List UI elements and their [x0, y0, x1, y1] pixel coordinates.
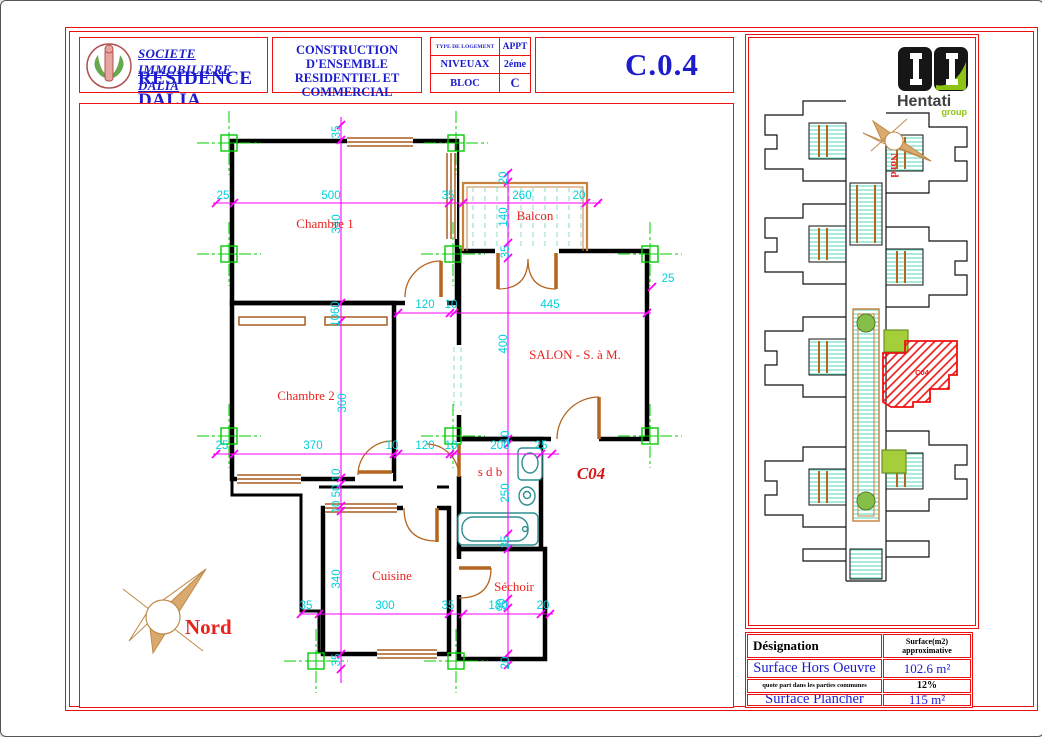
dimension-label: 25 — [216, 440, 229, 452]
dimension-label: 35 — [331, 654, 343, 667]
dimension-label: 340 — [331, 569, 343, 588]
field-level-value: 2éme — [500, 56, 530, 74]
site-north-label: Nord — [888, 153, 900, 177]
site-plan-drawing: C04 Hentati group Nord — [749, 38, 975, 625]
room-label: Séchoir — [494, 579, 534, 594]
dimension-label: 35 — [442, 600, 455, 612]
dimension-label: 35 — [500, 246, 512, 259]
dimension-label: 10 — [445, 440, 458, 452]
row-quote-part-value: 12% — [883, 679, 971, 693]
compass-circle — [146, 600, 180, 634]
room-label: Balcon — [517, 208, 554, 223]
logo-subtitle: group — [942, 107, 968, 117]
row-hors-oeuvre-label: Surface Hors Oeuvre — [747, 659, 882, 678]
surface-header-line2: approximative — [902, 646, 952, 655]
bathtub-inner — [462, 517, 528, 541]
toilet-drain — [524, 492, 531, 499]
titleblock-number-box: C.0.4 — [535, 37, 734, 93]
titleblock-fields-box: TYPE DE LOGEMENT APPT NIVEUAX 2éme BLOC … — [430, 37, 531, 93]
dimension-label: 300 — [375, 600, 394, 612]
dimension-label: 20 — [537, 600, 550, 612]
dimension-label: 90 — [496, 599, 508, 612]
dimension-label: 10 — [386, 440, 399, 452]
room-label: Chambre 1 — [296, 216, 353, 231]
table-header-surface: Surface(m2) approximative — [883, 634, 971, 658]
dimension-label: 120 — [415, 440, 434, 452]
wall-salon — [459, 251, 647, 439]
dimension-label: 35 — [331, 126, 343, 139]
sink-basin — [522, 453, 538, 473]
north-label: Nord — [185, 615, 232, 639]
dimension-label: 25 — [535, 440, 548, 452]
planter-bottom — [857, 492, 875, 510]
row-plancher-label: Surface Plancher — [747, 694, 882, 707]
dimension-label: 10 — [331, 501, 343, 514]
table-header-designation: Désignation — [747, 634, 882, 658]
dimension-label: 10 — [500, 431, 512, 444]
dimension-label: 10 — [445, 299, 458, 311]
titleblock-company-box: SOCIETE IMMOBILIERE DALIA RESIDENCE DALI… — [79, 37, 268, 93]
dimension-label: 445 — [540, 299, 559, 311]
planter-top — [857, 314, 875, 332]
field-bloc-label: BLOC — [431, 74, 500, 92]
dimension-label: 1060 — [330, 301, 342, 327]
logo-column-cap — [105, 45, 113, 53]
room-label: s d b — [478, 464, 503, 479]
room-label: Cuisine — [372, 568, 412, 583]
dimension-label: 35 — [442, 190, 455, 202]
project-line2: RESIDENTIEL ET COMMERCIAL — [273, 71, 421, 99]
apartment-code: C04 — [577, 464, 605, 483]
site-wing-l5 — [803, 549, 846, 561]
dimension-label: 35 — [300, 600, 313, 612]
grid-crosses — [197, 111, 682, 693]
wall-left-step — [232, 479, 323, 652]
dimension-label: 25 — [662, 273, 675, 285]
surface-table: Désignation Surface(m2) approximative Su… — [745, 632, 973, 708]
dimension-label: 35 — [500, 536, 512, 549]
door-salon — [557, 397, 599, 439]
room-label: SALON - S. à M. — [529, 347, 621, 362]
dimension-label: 370 — [303, 440, 322, 452]
field-bloc-value: C — [500, 74, 530, 92]
site-wing-r4 — [886, 541, 929, 557]
dimension-label: 20 — [573, 190, 586, 202]
row-plancher-value: 115 m² — [883, 694, 971, 707]
site-garden-strip — [853, 309, 879, 521]
floor-plan-drawing: 2550035260202014012010445106025370101201… — [80, 104, 733, 707]
closet-chambre2-a — [239, 317, 305, 325]
door-chambre1 — [405, 261, 441, 297]
dimension-label: 250 — [500, 483, 512, 502]
dimension-label: 10 — [331, 469, 343, 482]
surface-header-line1: Surface(m2) — [906, 637, 948, 646]
dimension-label: 25 — [217, 190, 230, 202]
row-quote-part-label: quote part dans les parties communes — [747, 679, 882, 693]
dimension-label: 120 — [415, 299, 434, 311]
project-line1: CONSTRUCTION D'ENSEMBLE — [273, 43, 421, 71]
company-logo — [84, 41, 134, 91]
hentati-logo: Hentati group — [897, 47, 968, 117]
field-type-label: TYPE DE LOGEMENT — [431, 38, 500, 56]
dimension-label: 400 — [498, 334, 510, 353]
dimension-label: 500 — [321, 190, 340, 202]
field-level-label: NIVEUAX — [431, 56, 500, 74]
dimension-label: 260 — [512, 190, 531, 202]
site-unit-code: C04 — [915, 368, 930, 377]
dimension-label: 20 — [498, 172, 510, 185]
logo-column — [105, 49, 113, 81]
dimension-label: 20 — [500, 657, 512, 670]
room-label: Chambre 2 — [277, 388, 334, 403]
drawing-number: C.0.4 — [625, 47, 699, 83]
dimension-label: 140 — [498, 207, 510, 226]
titleblock-project-box: CONSTRUCTION D'ENSEMBLE RESIDENTIEL ET C… — [272, 37, 422, 93]
dimension-label: 50 — [331, 485, 343, 498]
drawing-sheet: SOCIETE IMMOBILIERE DALIA RESIDENCE DALI… — [0, 0, 1042, 737]
row-hors-oeuvre-value: 102.6 m² — [883, 659, 971, 678]
bathtub-drain — [523, 527, 528, 532]
north-compass — [123, 569, 206, 653]
field-type-value: APPT — [500, 38, 530, 56]
dimension-label: 360 — [337, 393, 349, 412]
